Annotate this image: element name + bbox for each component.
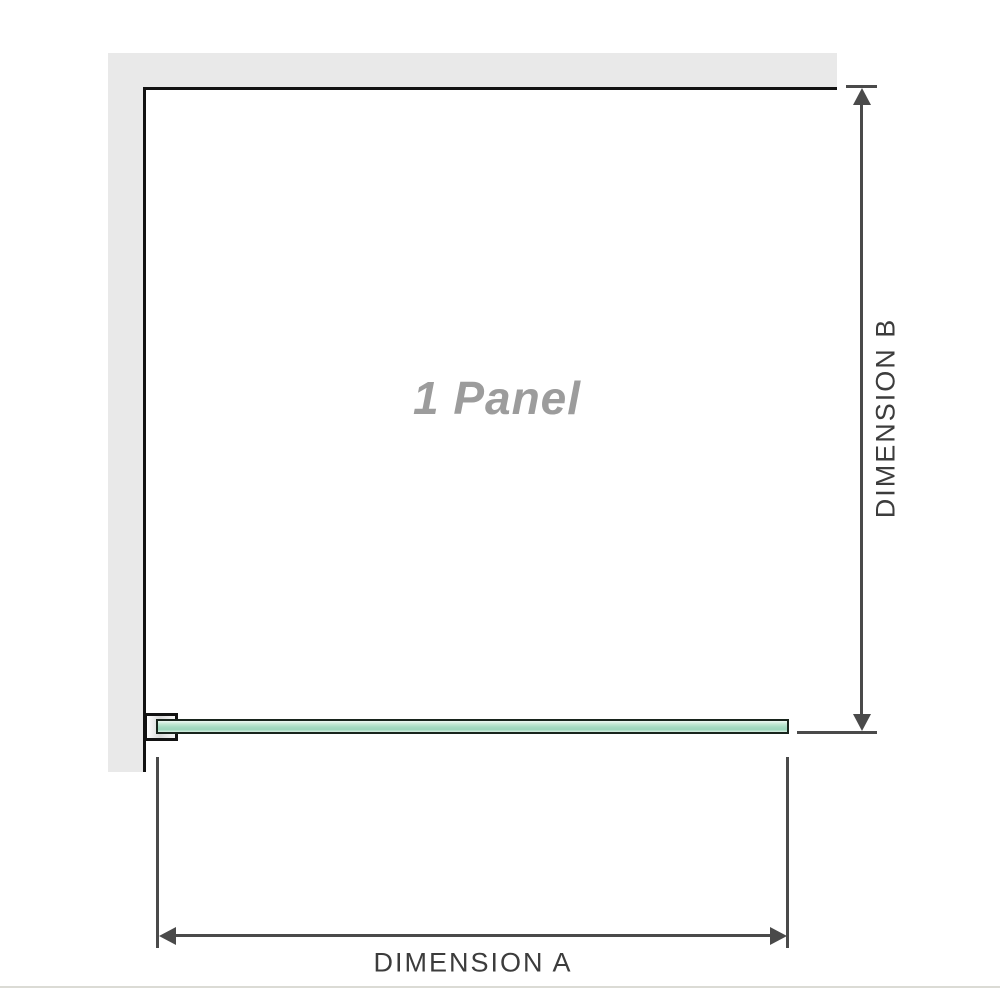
back-wall-inner-edge <box>143 87 837 90</box>
back-wall <box>108 53 837 87</box>
diagram-canvas: 1 Panel DIMENSION B DIMENSION A <box>0 0 1000 1000</box>
panel-count-label: 1 Panel <box>413 371 581 425</box>
dim-b-arrow-down-icon <box>853 714 871 731</box>
dim-a-extension-right <box>786 757 789 948</box>
dim-b-line <box>860 95 863 723</box>
dim-a-line <box>163 934 783 937</box>
dim-b-label: DIMENSION B <box>871 318 902 519</box>
dim-a-extension-left <box>156 757 159 948</box>
side-wall-inner-edge <box>143 87 146 772</box>
side-wall <box>108 53 143 772</box>
dim-b-tick-bottom <box>797 731 877 734</box>
bottom-separator <box>0 986 1000 988</box>
dim-a-label: DIMENSION A <box>373 948 572 979</box>
dim-a-arrow-left-icon <box>159 927 176 945</box>
glass-panel <box>156 719 789 734</box>
dim-a-arrow-right-icon <box>770 927 787 945</box>
dim-b-arrow-up-icon <box>853 88 871 105</box>
